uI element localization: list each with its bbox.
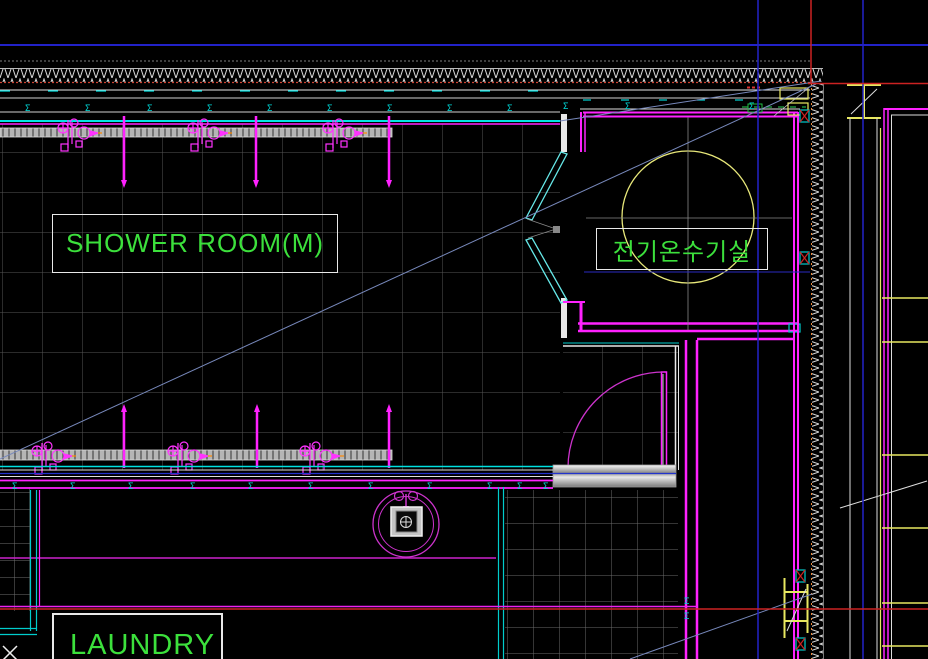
shower-room-north-wall xyxy=(0,121,560,124)
shower-room-label: SHOWER ROOM(M) xyxy=(52,214,338,273)
water-heater-symbol xyxy=(584,117,810,330)
sink xyxy=(373,491,439,557)
door-threshold xyxy=(553,465,676,487)
floor-plan-drawing: Σ xyxy=(0,0,928,659)
heater-room-label-text: 전기온수기실 xyxy=(613,232,751,267)
corridor-walls xyxy=(686,339,795,659)
right-wall-lines xyxy=(850,108,928,659)
x-mark xyxy=(3,646,17,659)
top-exterior-wall xyxy=(0,61,823,112)
corridor-floor-grid xyxy=(505,490,678,659)
steel-beam-bottom xyxy=(784,578,808,638)
steel-column-top xyxy=(847,85,881,118)
shower-room-label-text: SHOWER ROOM(M) xyxy=(66,228,324,259)
shower-room-floor-grid xyxy=(0,124,560,470)
right-exterior-wall xyxy=(812,83,824,659)
laundry-room-label: LAUNDRY xyxy=(52,613,223,659)
laundry-room-label-text: LAUNDRY xyxy=(70,629,215,659)
left-tile-strip xyxy=(0,487,30,611)
cad-canvas[interactable]: Σ xyxy=(0,0,928,659)
heater-room-label: 전기온수기실 xyxy=(596,228,768,270)
